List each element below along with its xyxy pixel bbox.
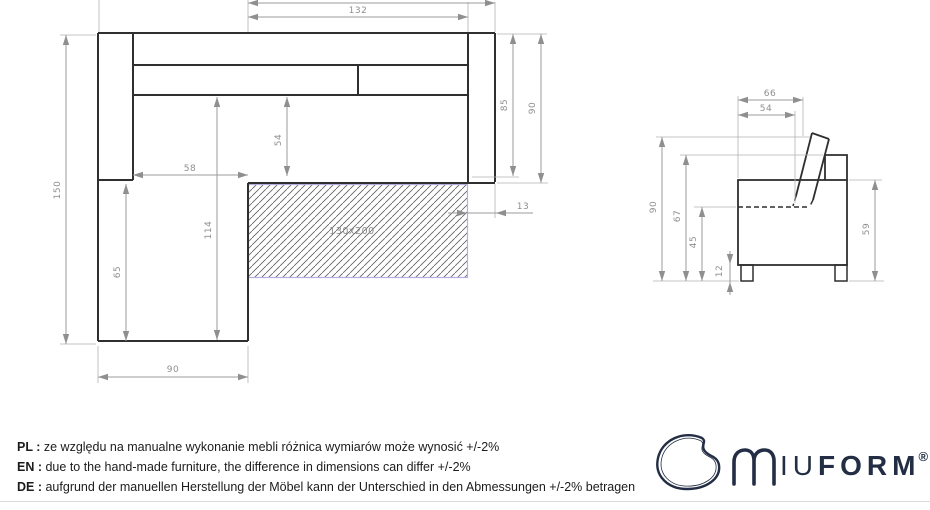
dim-label-total-length: 150 — [53, 181, 63, 200]
brand-logo: IUFORM® — [650, 431, 928, 493]
brand-text-heavy: FORM — [818, 450, 920, 481]
dim-label-armrest-width: 13 — [517, 202, 529, 212]
note-pl: PL : ze względu na manualne wykonanie me… — [17, 437, 635, 457]
dim-label-seat-depth: 54 — [274, 134, 284, 146]
side-view-extension-lines — [653, 96, 884, 281]
note-de-lang: DE : — [17, 480, 42, 494]
note-en: EN : due to the hand-made furniture, the… — [17, 457, 635, 477]
note-en-text: due to the hand-made furniture, the diff… — [45, 460, 470, 474]
dim-label-side-armrest-height: 59 — [862, 223, 872, 235]
dim-label-side-total-height: 90 — [649, 201, 659, 213]
note-en-lang: EN : — [17, 460, 42, 474]
note-pl-lang: PL : — [17, 440, 40, 454]
brand-text-light: IU — [780, 450, 818, 481]
note-de: DE : aufgrund der manuellen Herstellung … — [17, 477, 635, 497]
product-dimension-sheet: 132 85 90 13 150 58 114 54 65 90 130x200 — [0, 0, 930, 510]
registered-mark: ® — [918, 449, 928, 464]
brand-text: IUFORM® — [780, 449, 928, 482]
dim-label-inner-width: 58 — [184, 164, 196, 174]
dim-label-inner-length: 114 — [204, 221, 214, 240]
brand-m-glyph — [730, 447, 778, 487]
dim-label-total-depth: 90 — [528, 102, 538, 114]
mattress-size-label: 130x200 — [329, 226, 374, 237]
dim-label-front-length: 65 — [113, 266, 123, 278]
note-de-text: aufgrund der manuellen Herstellung der M… — [45, 480, 635, 494]
dim-label-seat-width: 132 — [349, 6, 368, 16]
dim-label-side-seat-depth: 54 — [760, 104, 772, 114]
dim-label-side-total-depth: 66 — [764, 89, 776, 99]
dim-label-armrest-depth: 85 — [500, 99, 510, 111]
dim-label-side-back-height: 67 — [673, 210, 683, 222]
dim-label-chaise-width: 90 — [167, 365, 179, 375]
tolerance-notes: PL : ze względu na manualne wykonanie me… — [17, 437, 635, 497]
dim-label-side-seat-height: 45 — [689, 236, 699, 248]
brand-bean-icon — [650, 432, 728, 492]
footer-divider — [0, 501, 930, 502]
top-view-drawing: 132 85 90 13 150 58 114 54 65 90 130x200 — [53, 0, 548, 383]
side-view-drawing: 66 54 90 67 45 12 59 — [649, 89, 884, 295]
dim-label-side-leg-height: 12 — [715, 265, 725, 277]
note-pl-text: ze względu na manualne wykonanie mebli r… — [44, 440, 499, 454]
